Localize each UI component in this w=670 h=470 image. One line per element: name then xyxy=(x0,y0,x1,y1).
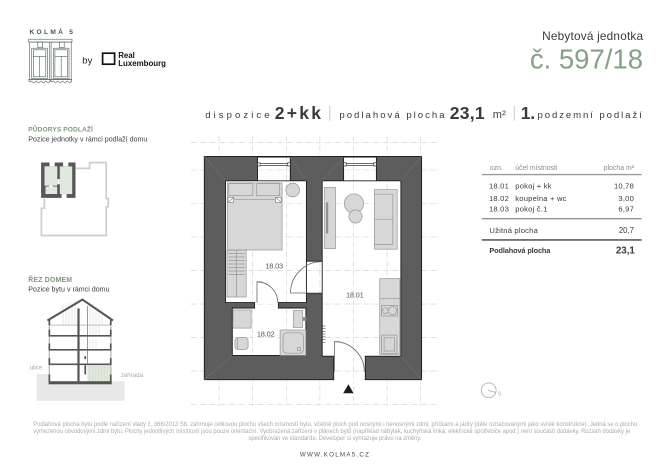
svg-text:specifikován ve standardu. Dev: specifikován ve standardu. Developer si … xyxy=(249,436,422,442)
svg-text:18.02: 18.02 xyxy=(489,194,509,203)
svg-text:18.01: 18.01 xyxy=(346,291,364,300)
svg-text:pokoj + kk: pokoj + kk xyxy=(515,182,551,191)
svg-text:vymezenou obvodovými zdmi bytu: vymezenou obvodovými zdmi bytu. Plochy j… xyxy=(33,428,631,435)
svg-text:18.01: 18.01 xyxy=(489,182,509,191)
svg-text:Pozice jednotky v rámci podlaž: Pozice jednotky v rámci podlaží domu xyxy=(28,135,147,143)
svg-text:pokoj č.1: pokoj č.1 xyxy=(515,205,547,214)
svg-text:20,7: 20,7 xyxy=(619,226,634,235)
svg-text:ulice: ulice xyxy=(30,365,43,372)
svg-text:Pozice bytu v rámci domu: Pozice bytu v rámci domu xyxy=(28,286,109,294)
svg-text:6,97: 6,97 xyxy=(618,205,634,214)
svg-text:dispozice: dispozice xyxy=(205,110,272,121)
svg-text:podzemní podlaží: podzemní podlaží xyxy=(538,110,644,121)
svg-text:č. 597/18: č. 597/18 xyxy=(530,44,643,75)
svg-text:Podlahová plocha bytu podle na: Podlahová plocha bytu podle nařízení vlá… xyxy=(33,422,637,428)
svg-text:ŘEZ DOMEM: ŘEZ DOMEM xyxy=(28,275,72,284)
svg-text:KOLMÁ 5: KOLMÁ 5 xyxy=(30,27,76,36)
svg-text:m²: m² xyxy=(493,109,506,121)
svg-text:18.03: 18.03 xyxy=(265,262,283,271)
svg-text:3,00: 3,00 xyxy=(618,194,634,203)
svg-text:zahrada: zahrada xyxy=(121,372,144,379)
svg-text:podlahová plocha: podlahová plocha xyxy=(339,110,446,121)
svg-text:Užitná plocha: Užitná plocha xyxy=(489,226,538,235)
svg-text:PŮDORYS PODLAŽÍ: PŮDORYS PODLAŽÍ xyxy=(28,124,93,134)
svg-text:plocha m²: plocha m² xyxy=(604,165,635,172)
svg-text:koupelna + wc: koupelna + wc xyxy=(515,194,566,203)
svg-text:Podlahová plocha: Podlahová plocha xyxy=(489,246,551,255)
svg-text:18.03: 18.03 xyxy=(489,205,509,214)
svg-text:Luxembourg: Luxembourg xyxy=(118,59,166,68)
svg-text:2+kk: 2+kk xyxy=(275,103,324,123)
svg-text:WWW.KOLMA5.CZ: WWW.KOLMA5.CZ xyxy=(300,451,370,458)
svg-text:S: S xyxy=(498,392,502,398)
svg-text:23,1: 23,1 xyxy=(616,245,636,256)
svg-text:účel místnosti: účel místnosti xyxy=(515,165,558,172)
svg-text:10,78: 10,78 xyxy=(614,182,634,191)
svg-text:Nebytová jednotka: Nebytová jednotka xyxy=(542,29,643,43)
svg-text:23,1: 23,1 xyxy=(450,103,485,123)
svg-text:by: by xyxy=(82,55,92,66)
svg-text:ozn.: ozn. xyxy=(490,165,503,172)
svg-text:1.: 1. xyxy=(521,103,535,123)
svg-text:18.02: 18.02 xyxy=(257,329,275,338)
